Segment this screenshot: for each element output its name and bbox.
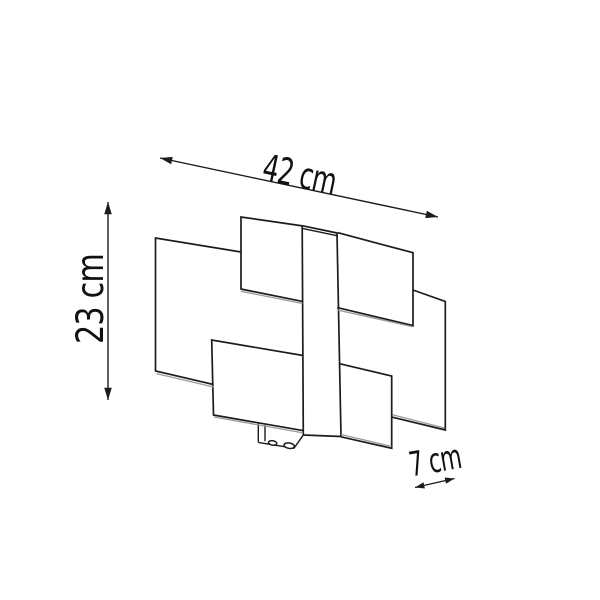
- panel-bottom-front-left: [212, 340, 303, 431]
- dimension-depth-label: 7 cm: [406, 437, 464, 485]
- dimension-height: 23 cm: [69, 202, 112, 400]
- center-bar: [302, 226, 341, 437]
- panel-top-left: [241, 217, 302, 301]
- panel-top-right-bottom-edge: [337, 308, 413, 326]
- panel-back-right: [392, 290, 445, 430]
- dimension-width-label: 42 cm: [259, 146, 340, 203]
- lamp-line-art: [156, 217, 446, 449]
- panel-back-left: [156, 238, 242, 385]
- panel-thickness-lines: [156, 291, 444, 446]
- diagram-canvas: 42 cm 23 cm 7 cm: [0, 0, 600, 600]
- screw-left: [268, 440, 277, 446]
- lamp-dimension-drawing: 42 cm 23 cm 7 cm: [0, 0, 600, 600]
- dimension-width: 42 cm: [160, 146, 438, 217]
- screw-right: [284, 442, 295, 449]
- dimension-height-label: 23 cm: [69, 254, 112, 344]
- dimension-depth: 7 cm: [406, 437, 464, 488]
